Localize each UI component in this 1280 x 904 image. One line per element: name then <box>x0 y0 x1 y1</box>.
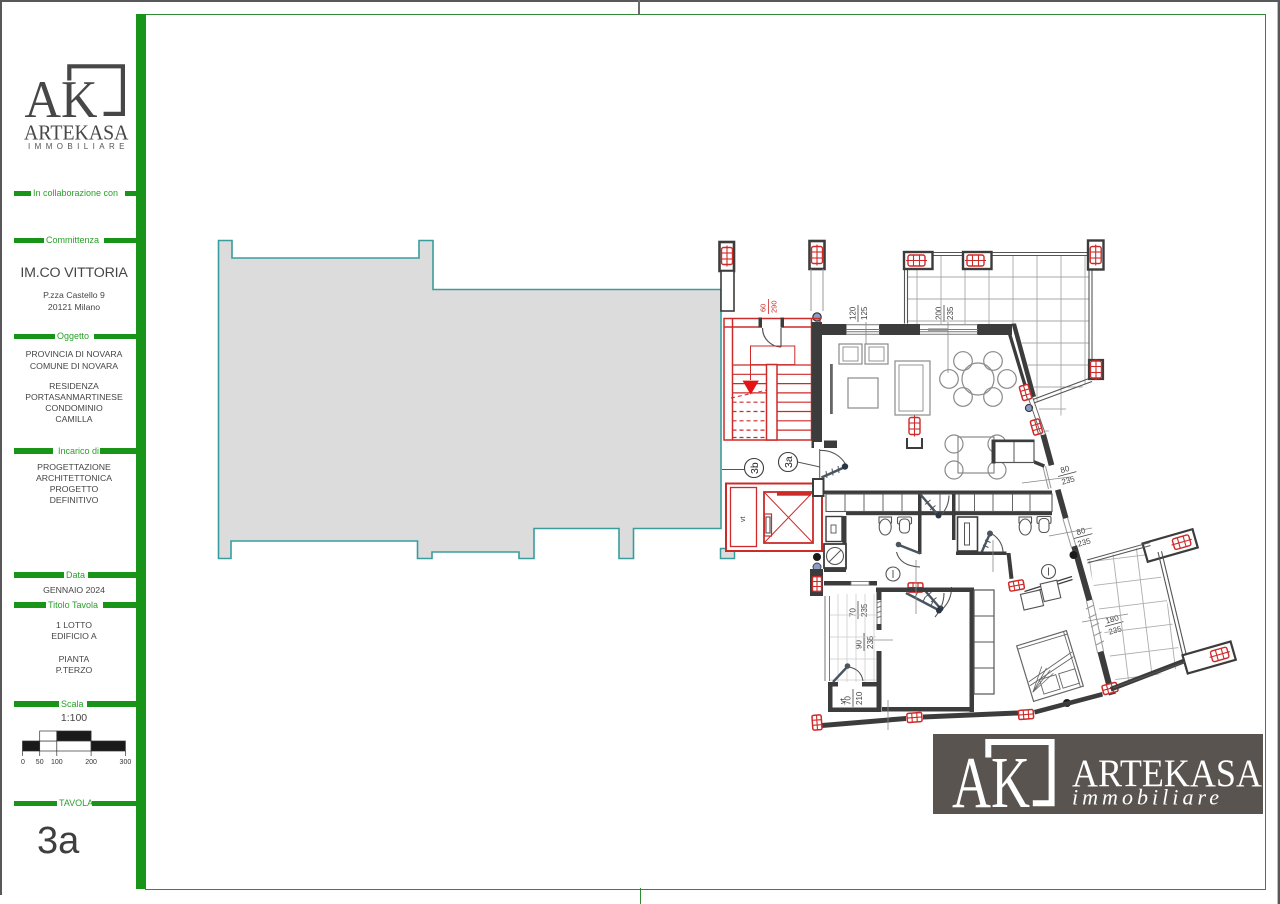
svg-text:125: 125 <box>860 306 869 320</box>
svg-text:180: 180 <box>1105 613 1121 625</box>
svg-text:3b: 3b <box>749 462 761 474</box>
svg-text:70: 70 <box>844 696 853 705</box>
svg-text:235: 235 <box>1061 474 1077 486</box>
svg-text:60: 60 <box>759 304 768 312</box>
svg-text:120: 120 <box>849 306 858 320</box>
svg-text:200: 200 <box>935 306 944 320</box>
svg-text:immobiliare: immobiliare <box>1072 785 1219 810</box>
svg-text:235: 235 <box>946 306 955 320</box>
svg-text:3a: 3a <box>783 456 795 468</box>
svg-text:290: 290 <box>770 300 779 313</box>
svg-text:vt: vt <box>740 517 747 523</box>
svg-text:235: 235 <box>1077 536 1093 548</box>
svg-text:210: 210 <box>855 691 864 705</box>
svg-text:AK: AK <box>952 742 1030 814</box>
